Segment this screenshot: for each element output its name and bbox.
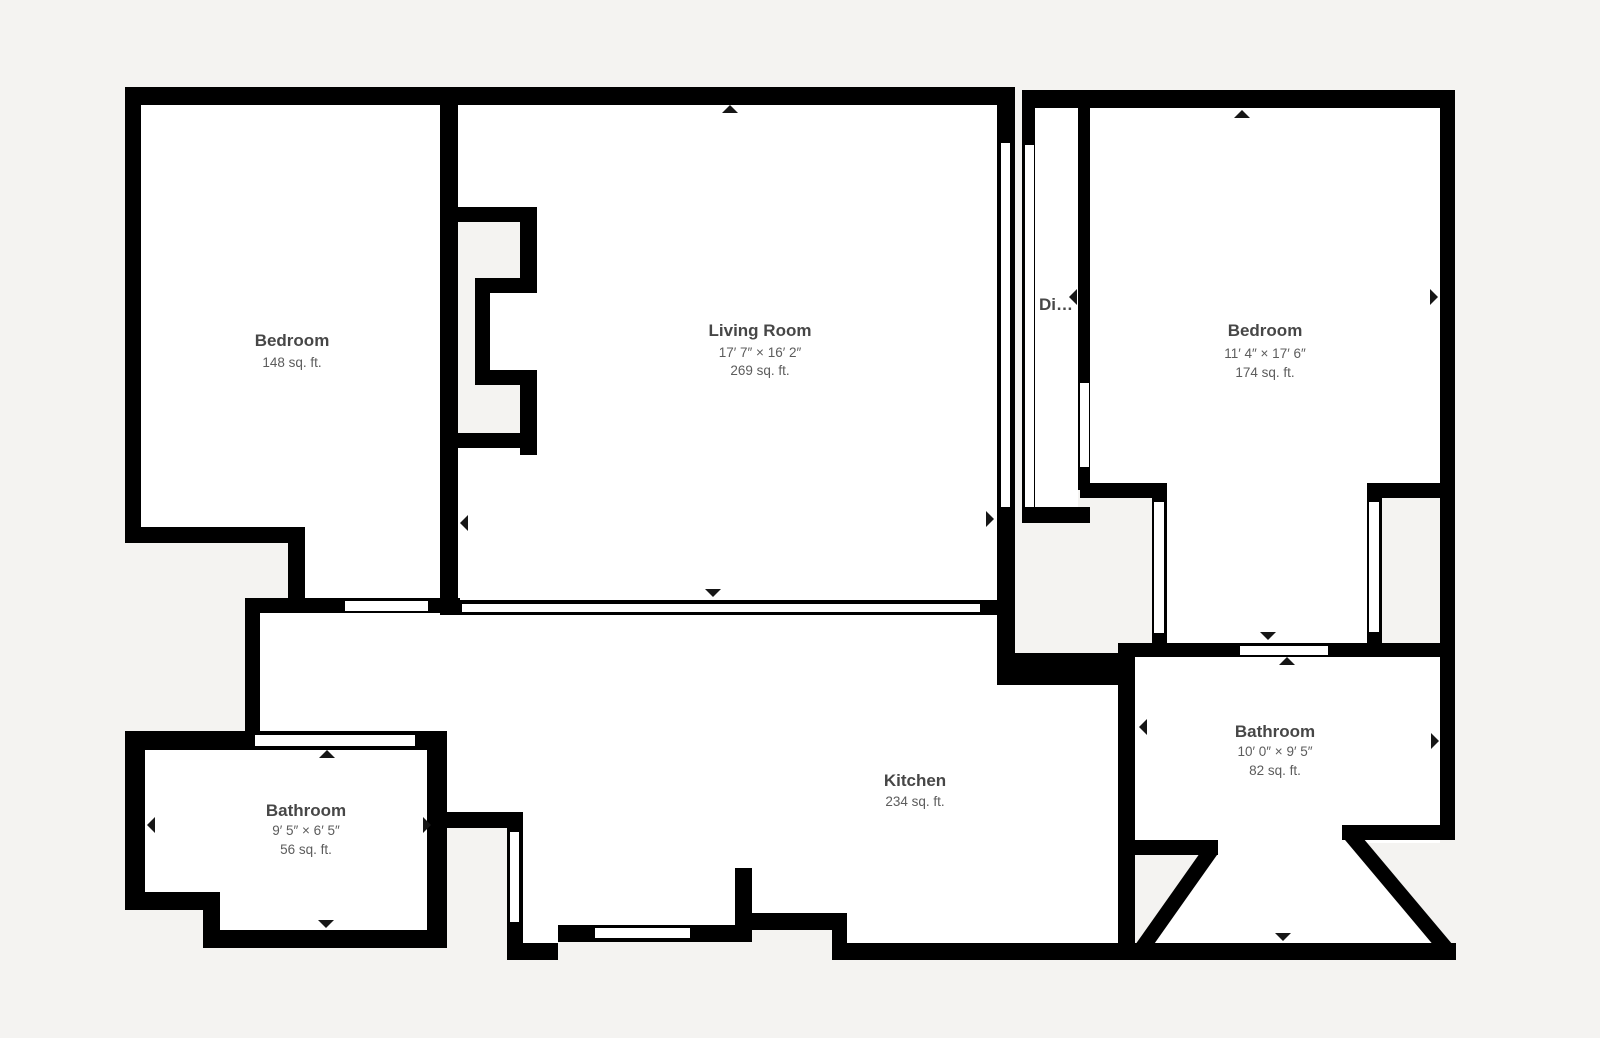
room-label-dimensions: 17′ 7″ × 16′ 2″ xyxy=(719,345,802,360)
wall-segment xyxy=(1118,643,1135,958)
wall-segment xyxy=(735,868,752,942)
wall-segment xyxy=(125,87,141,543)
room-label-area: 269 sq. ft. xyxy=(730,363,789,378)
wall-segment xyxy=(125,87,1015,105)
window-slot xyxy=(1154,502,1164,633)
room-label-name: Kitchen xyxy=(884,771,946,790)
room-label-name: Bathroom xyxy=(266,801,346,820)
wall-segment xyxy=(507,943,558,960)
wall-segment xyxy=(475,278,490,385)
wall-segment xyxy=(1367,483,1455,498)
wall-segment xyxy=(997,653,1135,685)
wall-segment xyxy=(427,731,447,948)
wall-segment xyxy=(125,527,305,543)
floor-plan-svg: Bedroom 148 sq. ft. Living Room 17′ 7″ ×… xyxy=(0,0,1600,1038)
room-label-area: 82 sq. ft. xyxy=(1249,763,1301,778)
window-slot xyxy=(1369,502,1379,632)
room-label-area: 148 sq. ft. xyxy=(262,355,321,370)
window-slot xyxy=(1001,143,1010,507)
room-label-name: Bathroom xyxy=(1235,722,1315,741)
wall-segment xyxy=(458,433,537,448)
window-slot xyxy=(255,735,415,746)
open-wall-line xyxy=(462,604,980,612)
room-label-name: Bedroom xyxy=(255,331,330,350)
wall-segment xyxy=(1022,507,1090,523)
door-opening xyxy=(1080,383,1089,467)
wall-segment xyxy=(1440,90,1455,840)
wall-segment xyxy=(1080,483,1167,498)
door-opening xyxy=(345,601,428,611)
wall-segment xyxy=(832,913,847,960)
room-label-area: 174 sq. ft. xyxy=(1235,365,1294,380)
room-label-dimensions: 11′ 4″ × 17′ 6″ xyxy=(1224,346,1306,361)
floor-plan: Bedroom 148 sq. ft. Living Room 17′ 7″ ×… xyxy=(0,0,1600,1038)
room-label-name: Di… xyxy=(1039,295,1073,314)
bedroom-left-floor xyxy=(141,103,440,598)
window-slot xyxy=(1025,145,1034,507)
room-label-area: 234 sq. ft. xyxy=(885,794,944,809)
wall-segment xyxy=(125,731,145,910)
door-opening xyxy=(1240,646,1328,655)
room-label-dimensions: 9′ 5″ × 6′ 5″ xyxy=(272,823,340,838)
wall-segment xyxy=(440,87,458,615)
window-slot xyxy=(510,832,519,922)
wall-segment xyxy=(203,930,447,948)
room-label-dimensions: 10′ 0″ × 9′ 5″ xyxy=(1237,744,1312,759)
room-label-area: 56 sq. ft. xyxy=(280,842,332,857)
room-label-name: Bedroom xyxy=(1228,321,1303,340)
door-opening xyxy=(595,928,690,938)
room-label-name: Living Room xyxy=(709,321,812,340)
wall-segment xyxy=(245,598,260,731)
